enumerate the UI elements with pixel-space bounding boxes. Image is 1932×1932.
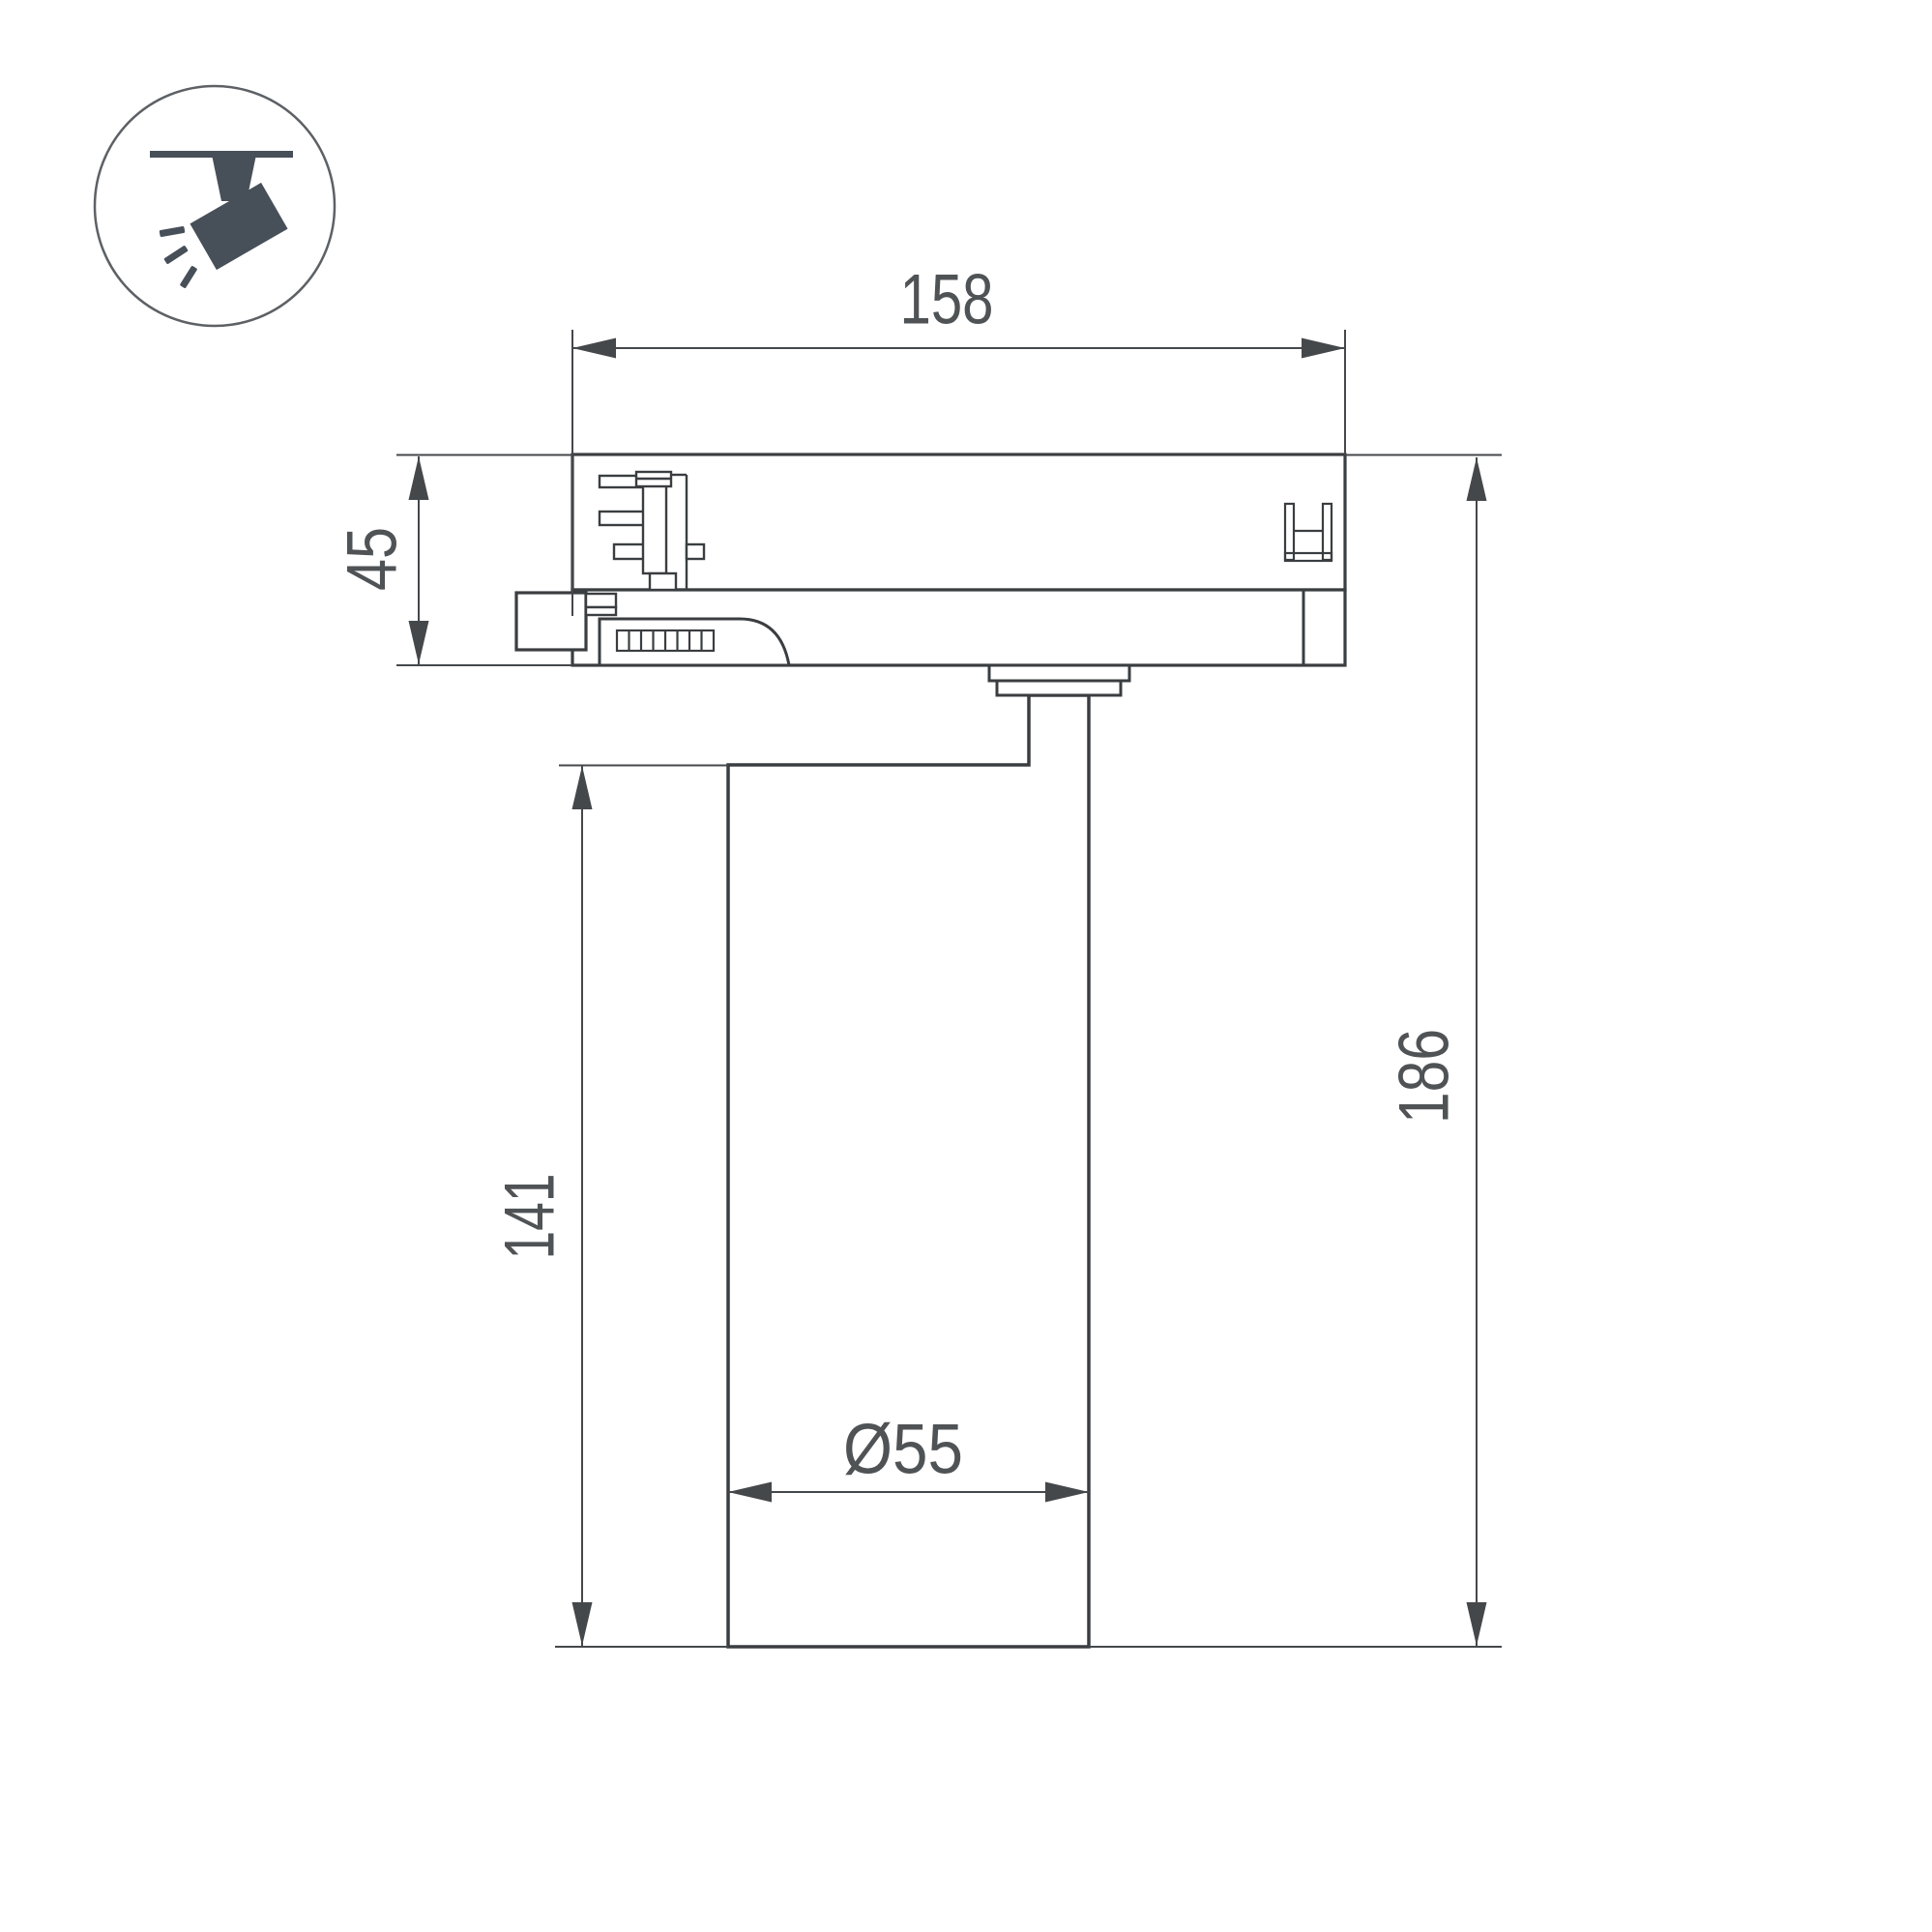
- arrowhead-down: [1467, 1602, 1487, 1646]
- arrowhead-up: [1467, 457, 1487, 501]
- arrowhead-left: [572, 338, 616, 359]
- dimension-label-body-diameter: Ø55: [843, 1411, 963, 1489]
- icon-light-rays: [160, 226, 198, 289]
- contact-mast: [643, 473, 666, 573]
- contact-prong-bottom: [614, 544, 646, 559]
- dimension-label-total-height: 186: [1386, 1029, 1464, 1124]
- stem-flange-lower: [997, 681, 1121, 695]
- dimension-label-adapter-height: 45: [334, 527, 412, 591]
- dimension-body-height: 141: [491, 766, 729, 1648]
- arrowhead-right: [1302, 338, 1345, 359]
- dimension-label-body-height: 141: [491, 1174, 570, 1260]
- arrowhead-up: [572, 766, 593, 809]
- adapter-clip-latch-lower: [586, 607, 616, 615]
- arrowhead-up: [409, 456, 429, 500]
- arrowhead-down: [572, 1602, 593, 1646]
- track-spotlight-icon: [95, 86, 335, 326]
- lamp-body-and-stem: [728, 695, 1089, 1647]
- adapter-slider-ribs: [617, 630, 714, 651]
- adapter-side-clip: [516, 593, 586, 650]
- adapter-clip-latch: [586, 594, 616, 607]
- technical-drawing-page: 158 45 141 186 Ø55: [0, 0, 1932, 1932]
- track-adapter: [516, 454, 1345, 665]
- stem-flange-upper: [989, 665, 1129, 681]
- dimension-drawing: 158 45 141 186 Ø55: [0, 0, 1932, 1932]
- contact-prong-middle: [600, 512, 646, 525]
- arrowhead-down: [409, 621, 429, 664]
- icon-circle: [95, 86, 335, 326]
- contact-foot: [650, 573, 676, 590]
- contact-right-tab: [687, 544, 704, 559]
- lamp-assembly: [728, 665, 1129, 1647]
- adapter-upper-housing: [572, 454, 1345, 590]
- dimension-label-track-width: 158: [900, 261, 994, 339]
- icon-lamp: [190, 183, 287, 270]
